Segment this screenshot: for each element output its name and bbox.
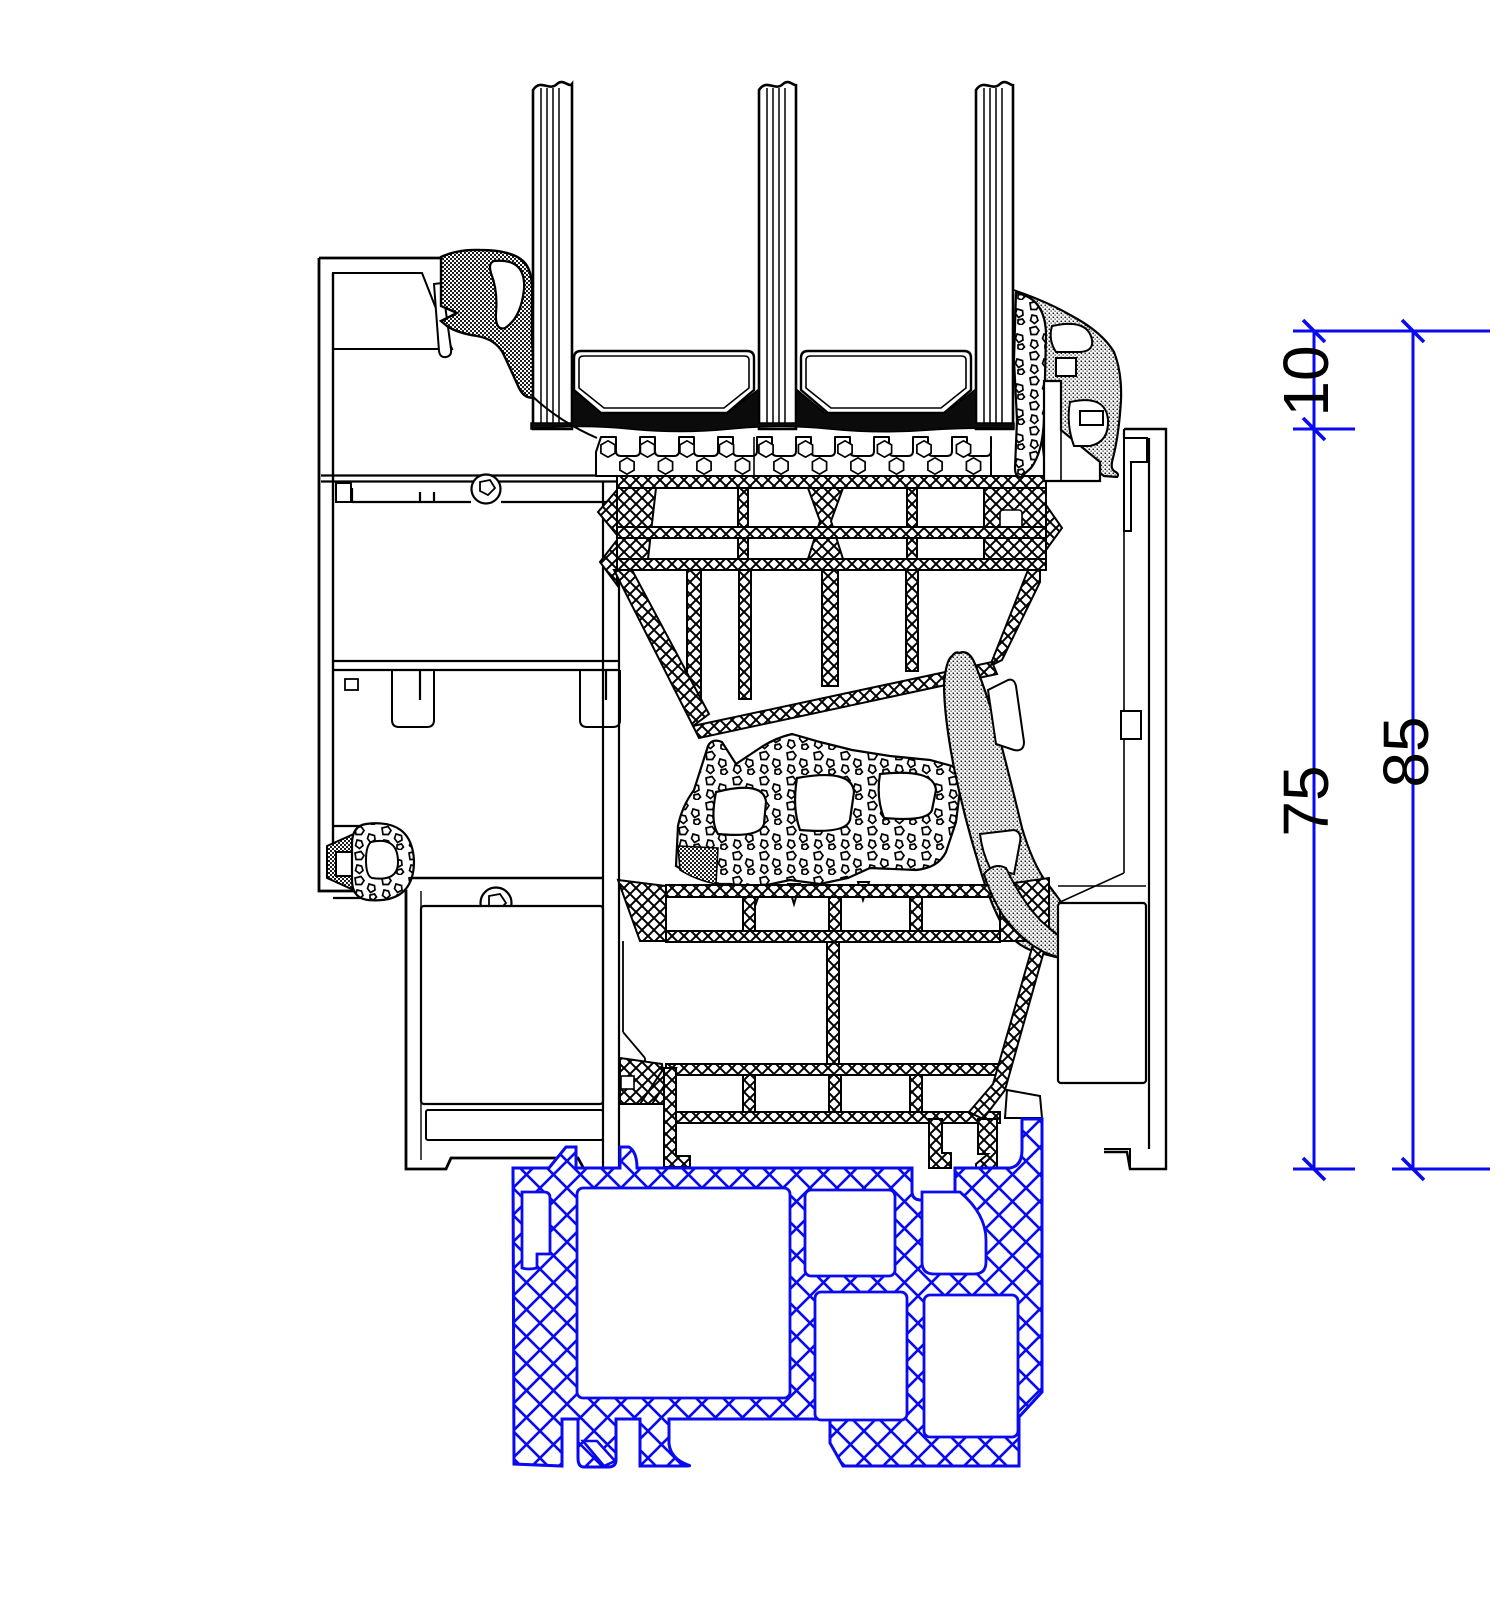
svg-text:75: 75 bbox=[1270, 765, 1342, 836]
svg-text:10: 10 bbox=[1270, 345, 1342, 416]
svg-text:85: 85 bbox=[1370, 716, 1442, 787]
